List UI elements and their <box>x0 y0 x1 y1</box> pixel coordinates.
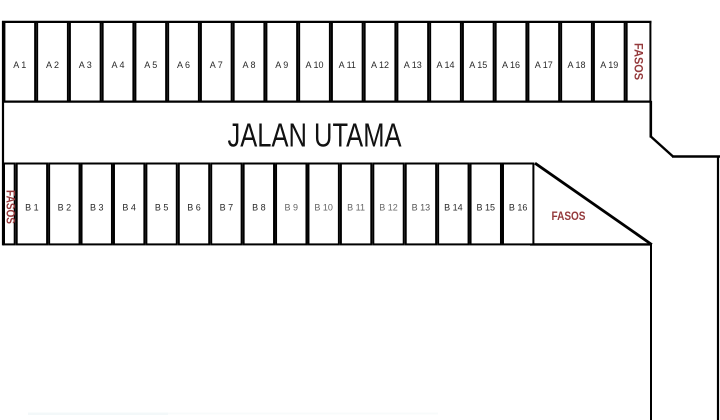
svg-text:A 19: A 19 <box>600 60 618 70</box>
svg-text:A 9: A 9 <box>275 60 288 70</box>
svg-text:B 2: B 2 <box>58 202 72 212</box>
svg-text:A 17: A 17 <box>535 60 553 70</box>
svg-text:B 9: B 9 <box>285 202 299 212</box>
svg-text:A 12: A 12 <box>371 60 389 70</box>
svg-text:B 3: B 3 <box>90 202 104 212</box>
svg-text:A 6: A 6 <box>177 60 190 70</box>
svg-text:A 1: A 1 <box>13 60 26 70</box>
svg-text:A 5: A 5 <box>144 60 157 70</box>
svg-text:B 11: B 11 <box>347 202 365 212</box>
svg-text:A 16: A 16 <box>502 60 520 70</box>
svg-text:B 10: B 10 <box>314 202 333 212</box>
svg-text:B 14: B 14 <box>444 202 463 212</box>
svg-text:A 13: A 13 <box>404 60 422 70</box>
svg-text:B 8: B 8 <box>252 202 266 212</box>
svg-text:A 8: A 8 <box>243 60 256 70</box>
svg-text:B 1: B 1 <box>25 202 39 212</box>
svg-text:B 15: B 15 <box>477 202 496 212</box>
svg-text:FASOS: FASOS <box>632 43 646 80</box>
svg-text:A 11: A 11 <box>339 60 356 70</box>
svg-text:A 7: A 7 <box>210 60 223 70</box>
svg-text:FASOS: FASOS <box>552 209 586 223</box>
svg-text:B 7: B 7 <box>220 202 234 212</box>
svg-text:A 4: A 4 <box>112 60 125 70</box>
svg-text:B 4: B 4 <box>122 202 136 212</box>
svg-text:A 18: A 18 <box>568 60 586 70</box>
svg-text:A 10: A 10 <box>306 60 324 70</box>
svg-text:JALAN UTAMA: JALAN UTAMA <box>228 117 402 154</box>
svg-text:A 2: A 2 <box>46 60 59 70</box>
svg-text:B 12: B 12 <box>379 202 398 212</box>
svg-text:A 15: A 15 <box>469 60 487 70</box>
svg-text:B 13: B 13 <box>412 202 431 212</box>
svg-text:FASOS: FASOS <box>3 190 15 224</box>
svg-text:A 14: A 14 <box>437 60 455 70</box>
svg-text:A 3: A 3 <box>79 60 92 70</box>
svg-text:B 6: B 6 <box>187 202 201 212</box>
svg-text:B 16: B 16 <box>509 202 528 212</box>
svg-text:B 5: B 5 <box>155 202 169 212</box>
